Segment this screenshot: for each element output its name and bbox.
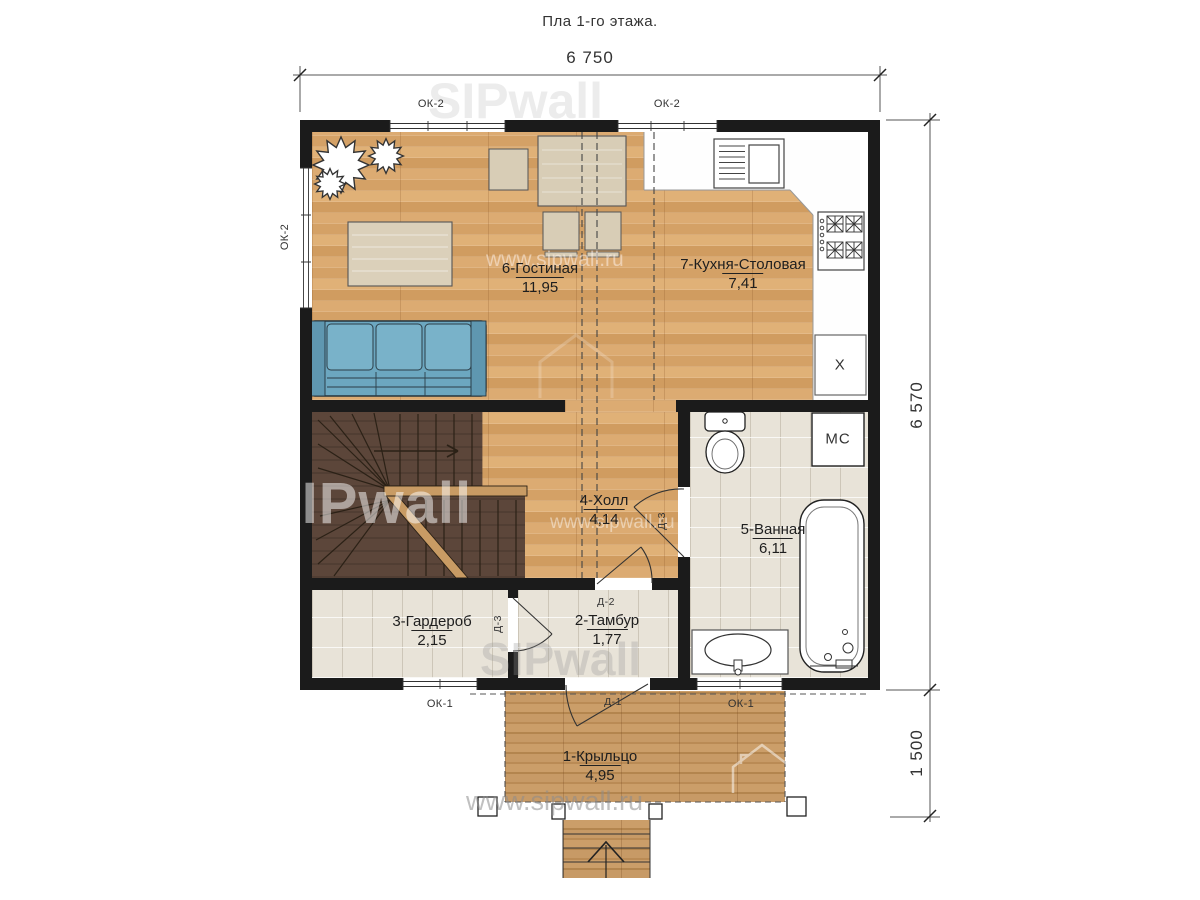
floor-steps — [563, 820, 650, 878]
room-label-wardrobe: 3-Гардероб 2,15 — [392, 613, 471, 650]
room-label-hall: 4-Холл 4,14 — [580, 492, 629, 529]
room-label-bathroom: 5-Ванная 6,11 — [741, 521, 806, 558]
room-label-porch: 1-Крыльцо 4,95 — [563, 748, 638, 785]
dimension-top-label: 6 750 — [566, 48, 614, 68]
door-label-entry: Д-1 — [604, 696, 622, 708]
window-label-bottom-porch: ОК-1 — [728, 698, 754, 710]
watermark-brand: SIPwall — [428, 72, 603, 130]
window-label-top-right: ОК-2 — [654, 98, 680, 110]
dimension-right-label: 6 570 — [907, 381, 927, 429]
floor-passage — [565, 400, 676, 412]
door-label-bathroom: Д-3 — [656, 512, 668, 530]
window-label-bottom-left: ОК-1 — [427, 698, 453, 710]
page-title: Пла 1-го этажа. — [542, 13, 657, 30]
appliance-label-washing-machine: МС — [825, 431, 850, 448]
dimension-porch-label: 1 500 — [907, 729, 927, 777]
room-label-living: 6-Гостиная 11,95 — [502, 260, 578, 297]
room-label-vestibule: 2-Тамбур 1,77 — [575, 612, 639, 649]
room-label-kitchen: 7-Кухня-Столовая 7,41 — [680, 256, 806, 293]
window-label-left: ОК-2 — [279, 224, 291, 250]
appliance-label-refrigerator: Х — [835, 357, 845, 374]
door-label-vestibule: Д-2 — [597, 596, 615, 608]
door-label-wardrobe: Д-3 — [492, 615, 504, 633]
floorplan-canvas: SIPwall SIPwall SIPwall www.sipwall.ru w… — [0, 0, 1200, 900]
window-label-top-left: ОК-2 — [418, 98, 444, 110]
